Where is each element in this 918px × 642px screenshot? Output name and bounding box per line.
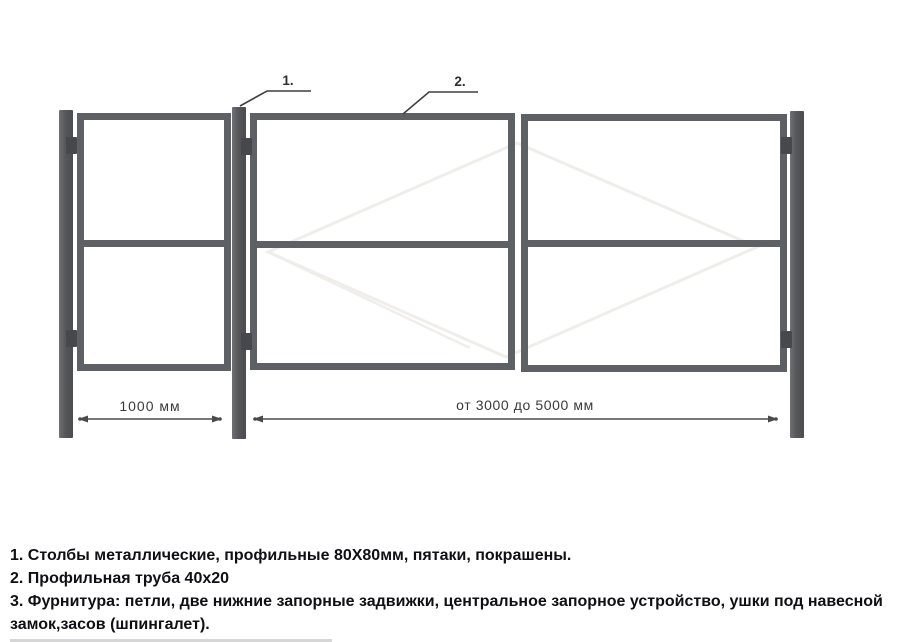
note-hardware: 3. Фурнитура: петли, две нижние запорные… — [10, 590, 916, 636]
gate-drawing-page: 1. 2. 1000 мм от 3000 до 5000 мм 1. Стол… — [0, 0, 918, 642]
dimension-line-gate — [253, 416, 778, 423]
notes-block: 1. Столбы металлические, профильные 80Х8… — [10, 544, 916, 636]
post-right — [790, 111, 804, 438]
hinge-left-leaf-bottom — [241, 333, 252, 350]
gate-leaf-right-midbar — [525, 240, 783, 247]
callout-2-label: 2. — [447, 74, 473, 89]
dimension-label-wicket: 1000 мм — [95, 398, 205, 414]
wicket-midbar — [81, 240, 227, 247]
dimension-label-gate: от 3000 до 5000 мм — [420, 397, 630, 413]
hinge-wicket-bottom — [66, 330, 77, 347]
post-middle — [232, 107, 246, 439]
gate-leaf-left-midbar — [254, 241, 511, 248]
note-tube: 2. Профильная труба 40х20 — [10, 567, 916, 590]
hinge-left-leaf-top — [241, 138, 252, 155]
dimension-line-wicket — [78, 416, 222, 423]
hinge-right-leaf-top — [781, 137, 792, 154]
note-posts: 1. Столбы металлические, профильные 80Х8… — [10, 544, 916, 567]
callout-1-leader-line — [240, 91, 311, 106]
hinge-wicket-top — [66, 137, 77, 154]
post-left — [59, 110, 73, 438]
hinge-right-leaf-bottom — [781, 331, 792, 348]
callout-2-leader-line — [403, 92, 478, 114]
callout-1-label: 1. — [275, 73, 301, 88]
